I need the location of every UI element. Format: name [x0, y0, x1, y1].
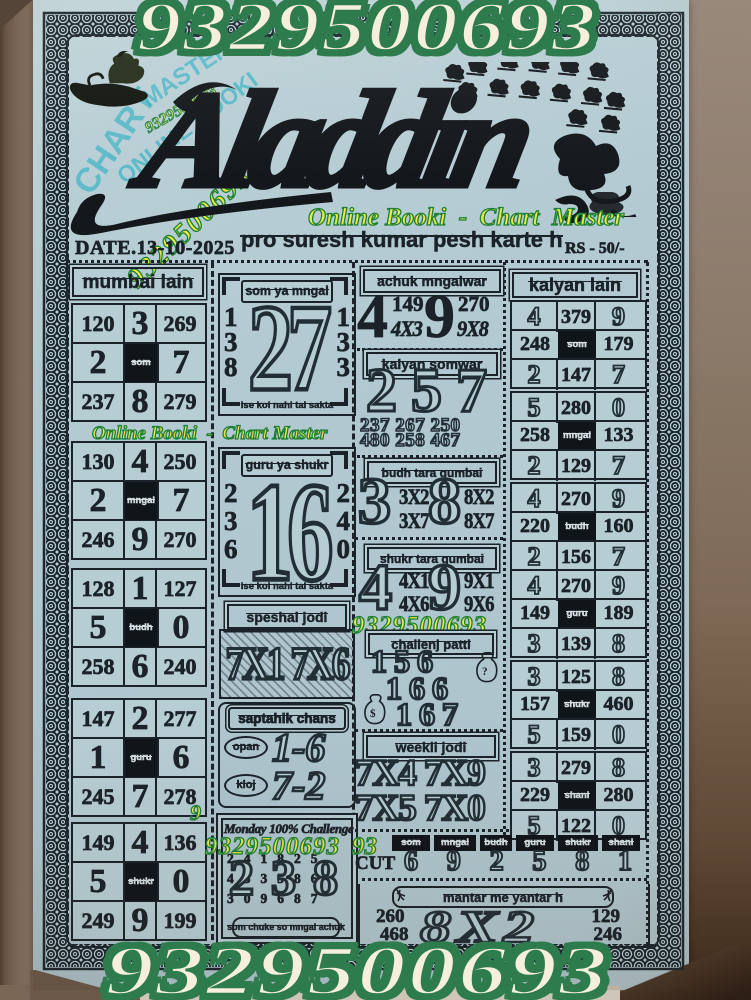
svg-text:?: ?: [482, 666, 488, 678]
svg-text:$: $: [370, 708, 376, 720]
